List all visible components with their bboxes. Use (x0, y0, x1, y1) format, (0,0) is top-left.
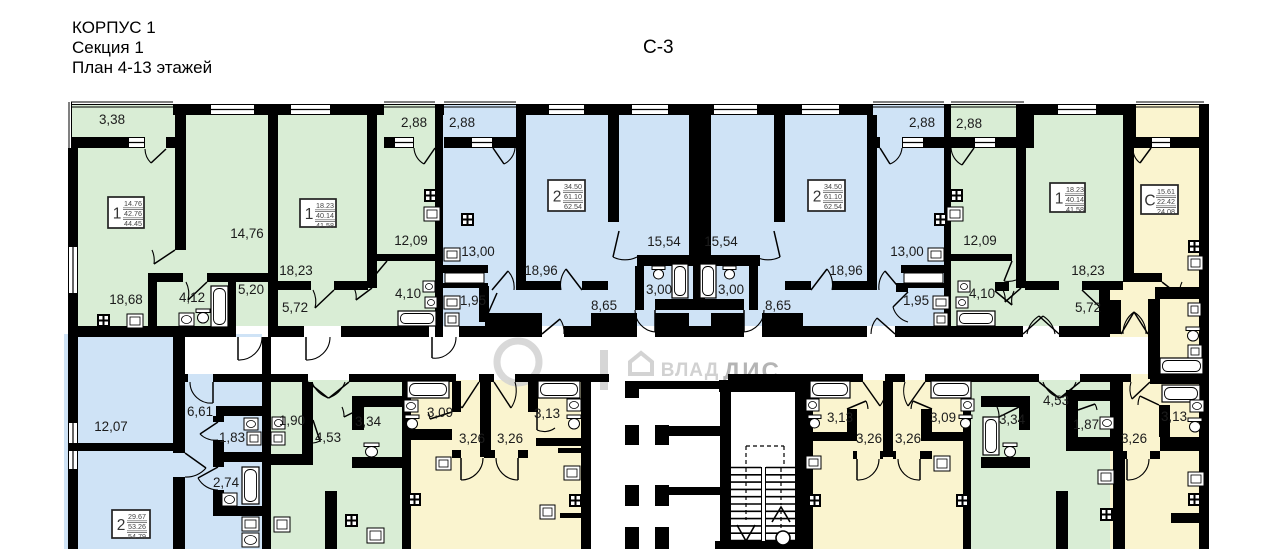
svg-text:3,13: 3,13 (534, 406, 560, 421)
svg-text:61.10: 61.10 (824, 192, 842, 201)
svg-text:5,20: 5,20 (238, 282, 264, 297)
svg-text:53.26: 53.26 (128, 522, 146, 531)
svg-text:2: 2 (553, 189, 562, 206)
svg-text:29.67: 29.67 (128, 512, 146, 521)
svg-text:41.58: 41.58 (316, 221, 334, 230)
svg-text:18,23: 18,23 (1071, 263, 1105, 278)
svg-text:2,74: 2,74 (213, 475, 240, 490)
svg-text:3,34: 3,34 (355, 414, 382, 429)
svg-text:34.50: 34.50 (564, 182, 582, 191)
svg-text:12,07: 12,07 (94, 419, 128, 434)
svg-text:62.54: 62.54 (824, 202, 842, 211)
svg-text:44.45: 44.45 (124, 219, 142, 228)
svg-text:КОРПУС 1: КОРПУС 1 (72, 18, 156, 37)
svg-text:3,26: 3,26 (856, 431, 882, 446)
svg-text:ВЛАД: ВЛАД (661, 360, 720, 381)
svg-text:1,90: 1,90 (279, 413, 305, 428)
svg-text:2,88: 2,88 (956, 116, 982, 131)
svg-text:2: 2 (813, 189, 822, 206)
svg-text:15.61: 15.61 (1157, 187, 1175, 196)
svg-text:2: 2 (117, 517, 126, 534)
svg-text:13,00: 13,00 (890, 244, 924, 259)
svg-text:3,09: 3,09 (427, 405, 453, 420)
svg-text:1: 1 (305, 206, 314, 223)
svg-text:1,83: 1,83 (219, 430, 245, 445)
svg-text:3,00: 3,00 (646, 282, 672, 297)
svg-text:4,10: 4,10 (969, 286, 995, 301)
svg-text:4,53: 4,53 (1043, 393, 1069, 408)
svg-text:18.23: 18.23 (1066, 185, 1084, 194)
svg-text:5,72: 5,72 (282, 300, 308, 315)
svg-text:5,72: 5,72 (1075, 300, 1101, 315)
svg-text:18,23: 18,23 (279, 263, 313, 278)
svg-text:42.76: 42.76 (124, 209, 142, 218)
svg-text:14,76: 14,76 (230, 226, 264, 241)
svg-text:1: 1 (113, 206, 122, 223)
svg-text:2,88: 2,88 (449, 115, 475, 130)
svg-text:18,68: 18,68 (109, 292, 143, 307)
svg-text:1: 1 (1055, 191, 1064, 208)
svg-text:18.23: 18.23 (316, 201, 334, 210)
svg-text:2,88: 2,88 (909, 115, 935, 130)
svg-text:15,54: 15,54 (647, 234, 681, 249)
svg-text:41.58: 41.58 (1066, 205, 1084, 214)
svg-text:22.42: 22.42 (1157, 197, 1175, 206)
svg-text:3,13: 3,13 (1161, 409, 1187, 424)
svg-text:3,26: 3,26 (497, 431, 523, 446)
svg-text:3,26: 3,26 (895, 431, 921, 446)
svg-text:3,34: 3,34 (999, 412, 1026, 427)
svg-text:14.76: 14.76 (124, 199, 142, 208)
svg-text:12,09: 12,09 (963, 233, 997, 248)
svg-text:1,95: 1,95 (460, 293, 486, 308)
svg-text:С-3: С-3 (643, 37, 674, 58)
svg-text:62.54: 62.54 (564, 202, 582, 211)
svg-text:12,09: 12,09 (394, 233, 428, 248)
svg-text:3,26: 3,26 (459, 431, 485, 446)
svg-text:34.50: 34.50 (824, 182, 842, 191)
svg-text:3,38: 3,38 (99, 112, 125, 127)
svg-text:61.10: 61.10 (564, 192, 582, 201)
svg-text:40.14: 40.14 (316, 211, 334, 220)
svg-text:4,53: 4,53 (315, 430, 341, 445)
svg-text:2,88: 2,88 (401, 115, 427, 130)
svg-text:С: С (1144, 193, 1155, 210)
svg-text:1,87: 1,87 (1073, 417, 1099, 432)
svg-text:6,61: 6,61 (187, 404, 213, 419)
svg-text:Секция 1: Секция 1 (72, 38, 144, 57)
svg-text:8,65: 8,65 (765, 298, 791, 313)
svg-text:3,13: 3,13 (827, 410, 853, 425)
svg-text:24.08: 24.08 (1157, 207, 1175, 216)
svg-text:18,96: 18,96 (829, 263, 863, 278)
svg-text:54.79: 54.79 (128, 532, 146, 541)
svg-text:3,00: 3,00 (718, 282, 744, 297)
svg-text:13,00: 13,00 (461, 244, 495, 259)
svg-text:8,65: 8,65 (591, 298, 617, 313)
svg-text:40.14: 40.14 (1066, 195, 1084, 204)
svg-text:15,54: 15,54 (704, 234, 738, 249)
svg-text:18,96: 18,96 (524, 263, 558, 278)
svg-text:4,12: 4,12 (179, 290, 205, 305)
svg-text:3,09: 3,09 (930, 410, 956, 425)
svg-text:4,10: 4,10 (395, 286, 421, 301)
svg-text:План 4-13 этажей: План 4-13 этажей (72, 58, 212, 77)
svg-text:3,26: 3,26 (1121, 431, 1147, 446)
svg-text:1,95: 1,95 (903, 293, 929, 308)
